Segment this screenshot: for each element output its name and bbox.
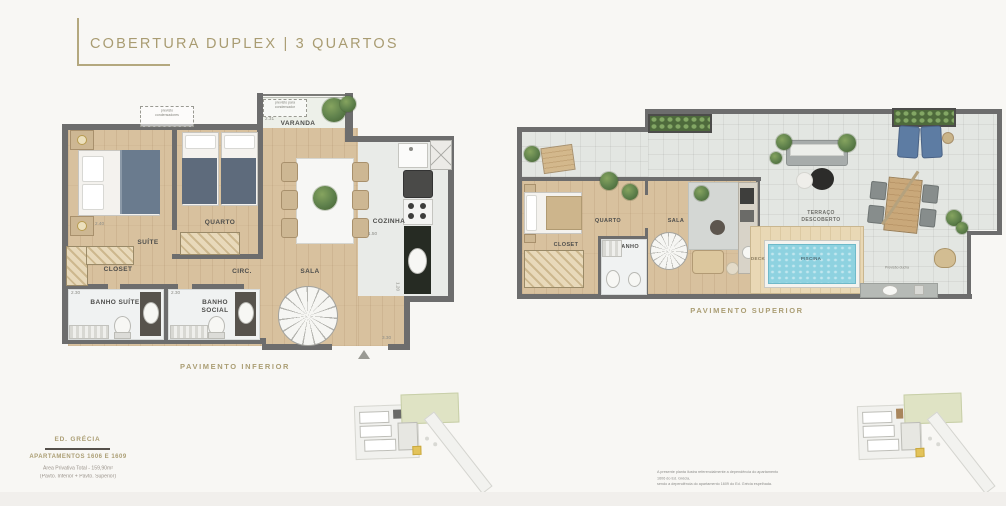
appliance: [740, 210, 754, 222]
closet-cabinet: [86, 246, 134, 265]
wall: [388, 344, 410, 350]
wall: [172, 128, 177, 230]
bed-blanket: [546, 196, 582, 230]
label-closet: CLOSET: [92, 266, 144, 274]
burner-icon: [420, 213, 426, 219]
disclaimer: A presente planta ilustra referencialmen…: [657, 470, 781, 488]
wall: [258, 128, 263, 259]
lower-plan-caption: PAVIMENTO INFERIOR: [160, 362, 310, 371]
lamp-icon: [77, 221, 87, 231]
page-title: COBERTURA DUPLEX | 3 QUARTOS: [90, 36, 399, 52]
toilet-tank: [208, 332, 225, 339]
wall: [404, 296, 410, 350]
wicker-chair: [934, 248, 956, 268]
pillow: [82, 156, 104, 182]
plant-icon: [340, 96, 356, 112]
disclaimer-line-1: A presente planta ilustra referencialmen…: [657, 470, 781, 482]
label-deck: DECK: [748, 256, 768, 261]
site-building: [867, 439, 899, 452]
site-tree: [425, 437, 429, 441]
label-terraco-2: DESCOBERTO: [792, 217, 850, 223]
side-table: [942, 132, 954, 144]
wood-lounger: [540, 144, 575, 174]
burner-icon: [420, 203, 426, 209]
drain-box: [914, 285, 924, 295]
label-quarto: QUARTO: [190, 219, 250, 227]
plant-icon: [313, 186, 337, 210]
plant-icon: [524, 146, 540, 162]
lamp-icon: [77, 135, 87, 145]
service-nook: [860, 283, 938, 298]
burner-icon: [408, 203, 414, 209]
site-plan-upper: [841, 379, 995, 496]
wall: [519, 177, 761, 181]
beanbag: [810, 168, 834, 190]
outdoor-chair: [869, 181, 887, 201]
plant-icon: [600, 172, 618, 190]
varanda-railing: [263, 94, 345, 96]
label-banho-social: BANHO SOCIAL: [190, 299, 240, 315]
kitchen-sink: [398, 143, 428, 168]
site-plan-lower: [338, 379, 492, 496]
planter-box: [892, 108, 956, 127]
wall: [967, 231, 1000, 235]
wall: [517, 127, 651, 132]
planter-box: [648, 114, 712, 133]
condenser-note: previsto condensadores: [151, 109, 183, 118]
disclaimer-line-2: sendo a dependência do apartamento 1609 …: [657, 482, 781, 488]
pillow: [224, 135, 255, 149]
bench-cushions: [790, 144, 844, 156]
shower-area: [69, 325, 109, 339]
faucet-icon: [409, 147, 413, 151]
dining-chair: [281, 190, 298, 210]
area-line: Área Privativa Total - 159,90m²: [27, 466, 129, 471]
title-bracket-horizontal: [77, 64, 170, 66]
condenser-note: previsto para condensador: [269, 101, 300, 110]
dining-chair: [352, 162, 369, 182]
pillow: [82, 184, 104, 210]
units-line: APARTAMENTOS 1606 E 1609: [18, 454, 138, 460]
plant-icon: [838, 134, 856, 152]
pouf: [796, 172, 813, 189]
outdoor-chair: [921, 184, 939, 204]
wall: [404, 296, 454, 302]
previsao-note: Previsão ducha: [883, 266, 912, 270]
dim-banho-suite: 2.30: [71, 291, 80, 296]
site-tree: [936, 442, 940, 446]
sun-lounger: [897, 125, 920, 158]
dining-chair: [281, 162, 298, 182]
dim-banho-social: 2.30: [171, 291, 180, 296]
sink: [238, 302, 254, 324]
label-sala: SALA: [288, 268, 332, 276]
dim-suite: 2.40: [95, 222, 104, 227]
pillow: [185, 135, 216, 149]
outdoor-table: [883, 177, 922, 234]
building-name: ED. GRÉCIA: [30, 436, 125, 443]
site-road: [424, 411, 493, 494]
sink: [143, 302, 159, 324]
label-upper-quarto: QUARTO: [585, 218, 631, 225]
outdoor-chair: [919, 208, 937, 228]
appliance: [740, 188, 754, 204]
spiral-staircase-icon: [650, 232, 688, 270]
shower-area: [602, 240, 622, 257]
sink: [628, 272, 641, 287]
dim-cozinha-depth: 1.20: [395, 282, 400, 291]
gold-tag-marker: [412, 446, 421, 455]
title-bracket-vertical: [77, 18, 79, 65]
shower-area: [170, 325, 208, 339]
site-tree: [928, 437, 932, 441]
info-divider: [45, 448, 110, 450]
entry-arrow-icon: [358, 350, 370, 359]
fridge: [403, 170, 433, 198]
condenser-area-top: previsto condensadores: [140, 106, 194, 127]
site-building: [862, 411, 892, 424]
coffee-table: [710, 220, 725, 235]
dining-chair: [281, 218, 298, 238]
counter-sink: [408, 248, 427, 274]
brochure-page: COBERTURA DUPLEX | 3 QUARTOS previsto pa…: [0, 0, 1006, 506]
washtub: [882, 285, 898, 296]
site-road: [927, 411, 996, 494]
plant-icon: [776, 134, 792, 150]
wall: [645, 177, 648, 195]
condenser-area-varanda: previsto para condensador: [263, 99, 307, 117]
bottom-band: [0, 492, 1006, 506]
label-upper-closet: CLOSET: [544, 242, 588, 249]
label-circ: CIRC.: [220, 268, 264, 276]
toilet-tank: [114, 332, 131, 339]
label-terraco-1: TERRAÇO: [792, 210, 850, 216]
bed-blanket: [182, 158, 217, 204]
highlighted-building-marker: [393, 409, 401, 418]
plant-icon: [694, 186, 709, 201]
bed-blanket: [120, 150, 160, 214]
upper-closet-cabinet: [524, 250, 584, 288]
gold-tag-marker: [915, 448, 924, 457]
highlighted-building-marker: [896, 409, 903, 419]
sun-lounger: [920, 125, 943, 158]
toilet: [606, 270, 620, 288]
pillow: [526, 195, 537, 231]
wardrobe: [180, 232, 240, 255]
site-building: [364, 439, 396, 452]
dining-chair: [352, 190, 369, 210]
site-tree: [433, 442, 437, 446]
wall: [262, 344, 332, 350]
plant-icon: [956, 222, 968, 234]
floors-line: (Pavto. Inferior + Pavto. Superior): [27, 474, 129, 479]
pool: [768, 244, 856, 284]
closet-cabinet: [66, 246, 88, 286]
site-building: [360, 425, 392, 438]
armchair: [692, 250, 724, 274]
bed-blanket: [221, 158, 256, 204]
upper-plan-caption: PAVIMENTO SUPERIOR: [672, 306, 822, 315]
label-cozinha: COZINHA: [360, 218, 418, 226]
label-varanda: VARANDA: [268, 120, 328, 128]
site-building: [900, 422, 921, 451]
wall: [997, 109, 1002, 235]
site-building: [863, 425, 895, 438]
plant-icon: [770, 152, 782, 164]
site-building: [359, 411, 389, 424]
wall: [967, 231, 971, 299]
label-upper-sala: SALA: [655, 218, 697, 225]
plant-icon: [622, 184, 638, 200]
dim-sala-door: 3.30: [382, 336, 391, 341]
pantry-cabinet: [430, 140, 452, 170]
spiral-staircase-icon: [278, 286, 338, 346]
nightstand: [524, 234, 536, 243]
label-piscina: PISCINA: [794, 256, 828, 261]
label-banho-suite: BANHO SUÍTE: [90, 299, 140, 307]
dim-cozinha: 1.50: [368, 232, 377, 237]
outdoor-dining-set: [863, 169, 940, 242]
